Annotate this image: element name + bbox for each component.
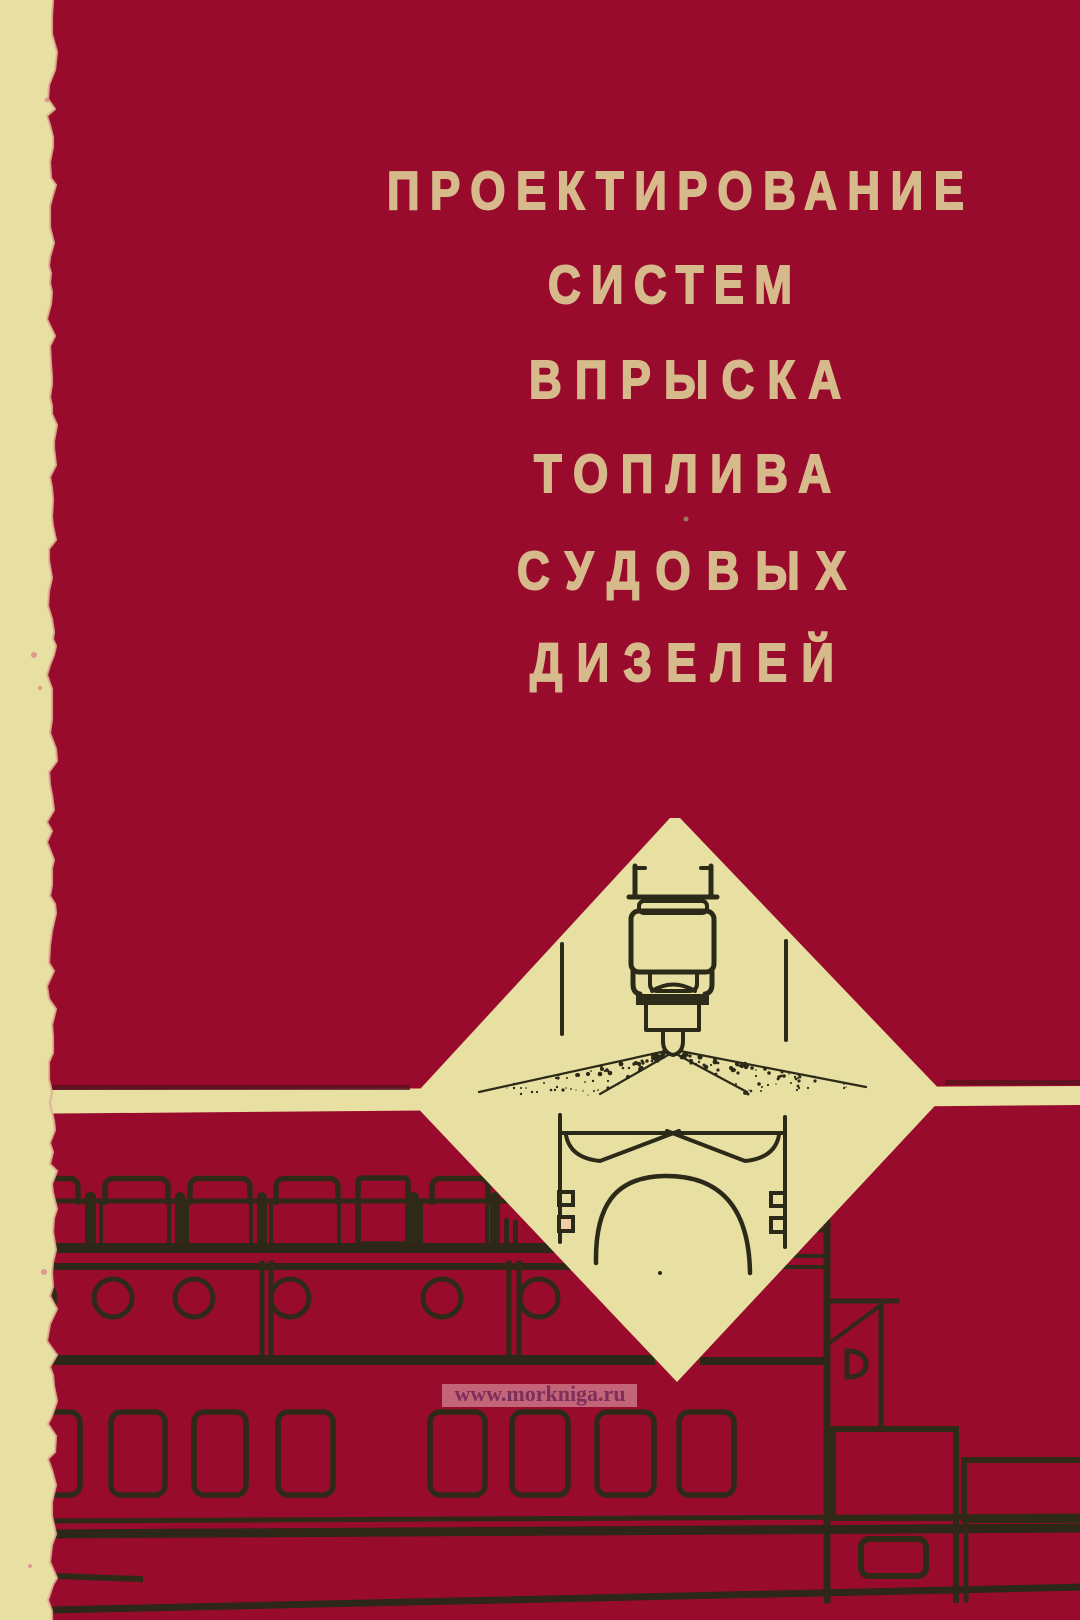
svg-text:www.morkniga.ru: www.morkniga.ru	[454, 1381, 625, 1406]
svg-text:СУДОВЫХ: СУДОВЫХ	[517, 540, 846, 601]
svg-text:ВПРЫСКА: ВПРЫСКА	[529, 349, 841, 410]
